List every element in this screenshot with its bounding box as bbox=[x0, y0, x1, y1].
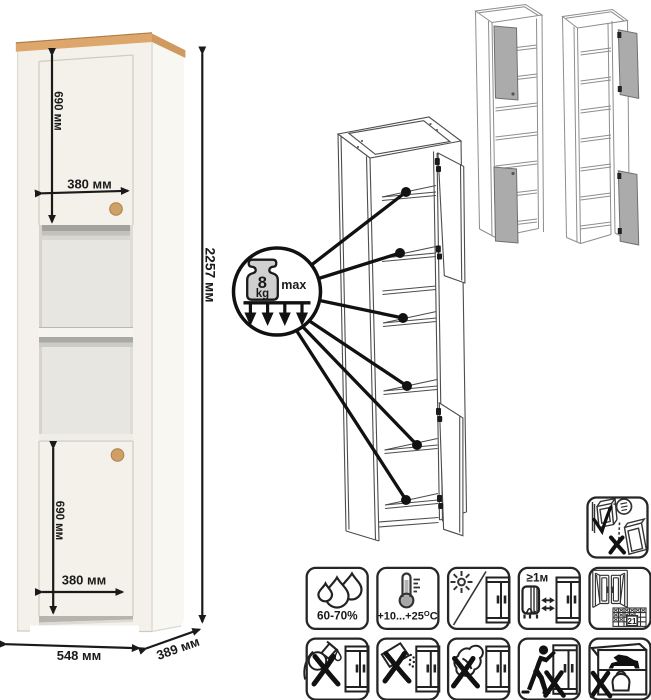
svg-text:≥1м: ≥1м bbox=[527, 571, 549, 585]
svg-text:690 мм: 690 мм bbox=[52, 91, 64, 130]
svg-text:690 мм: 690 мм bbox=[53, 501, 65, 540]
svg-text:60-70%: 60-70% bbox=[317, 609, 358, 623]
svg-text:380 мм: 380 мм bbox=[62, 573, 107, 588]
svg-text:548 мм: 548 мм bbox=[57, 648, 102, 663]
svg-text:380 мм: 380 мм bbox=[67, 177, 112, 192]
svg-text:kg: kg bbox=[256, 288, 269, 300]
svg-text:max: max bbox=[281, 278, 306, 292]
svg-text:2257 мм: 2257 мм bbox=[203, 248, 218, 303]
svg-text:21: 21 bbox=[628, 617, 637, 626]
